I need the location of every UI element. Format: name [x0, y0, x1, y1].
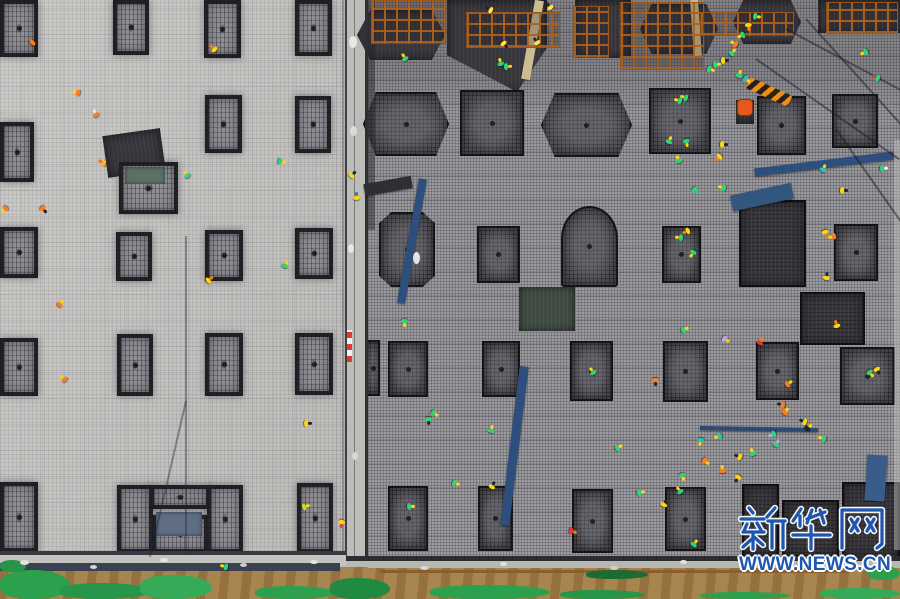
construction-site-aerial-photo: 新华网 WWW.NEWS.CN	[0, 0, 900, 599]
expansion-joint-walkway	[345, 0, 368, 560]
left-concrete-slab	[0, 0, 345, 555]
debris	[160, 558, 168, 562]
watermark-site-name: 新华网	[737, 504, 887, 554]
watermark-url: WWW.NEWS.CN	[739, 554, 891, 576]
right-rebar-mesh-slab	[368, 0, 900, 561]
debris	[310, 560, 318, 564]
edge-strip	[0, 555, 346, 566]
debris	[20, 560, 29, 565]
xinhuanet-watermark: 新华网 WWW.NEWS.CN	[737, 504, 897, 586]
debris	[500, 562, 507, 566]
